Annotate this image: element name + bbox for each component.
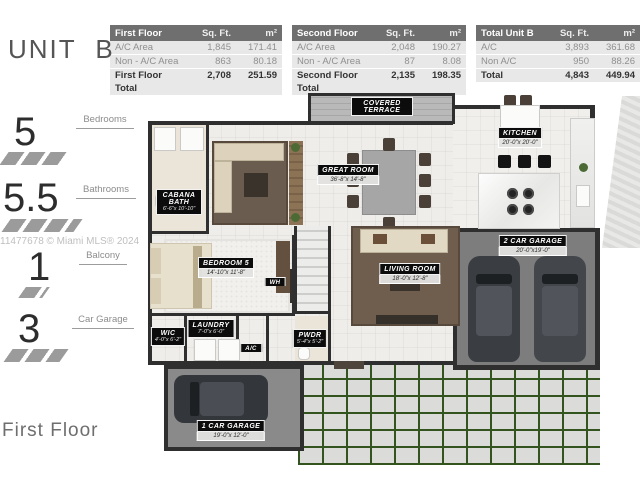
- pillow: [151, 278, 161, 304]
- stat-garage-label: Car Garage: [72, 314, 134, 329]
- stat-bathrooms-label: Bathrooms: [76, 184, 136, 199]
- car-roof: [200, 382, 244, 416]
- unit-title: UNIT B: [8, 34, 115, 65]
- stat-bathrooms-value: 5.5: [3, 178, 59, 218]
- island-stool: [518, 155, 531, 168]
- wall: [328, 311, 331, 363]
- car-top-view: [534, 256, 586, 362]
- table-total-row: Total 4,843 449.94: [476, 69, 640, 83]
- table-total-row: Second Floor Total 2,135 198.35: [292, 69, 466, 96]
- plant: [291, 213, 300, 222]
- washer: [194, 339, 216, 361]
- table-title: Second Floor: [297, 27, 369, 40]
- car-top-view: [174, 375, 268, 423]
- room-label-cabana-bath: CABANA BATH 6'-6"x 10'-10": [156, 189, 202, 215]
- cooktop-burner: [523, 204, 534, 215]
- table-row: Non - A/C Area 87 8.08: [292, 55, 466, 69]
- car-roof: [542, 286, 578, 336]
- dining-chair: [419, 174, 431, 187]
- cooktop-burner: [507, 204, 518, 215]
- table-first-floor: First Floor Sq. Ft. m² A/C Area 1,845 17…: [110, 25, 282, 96]
- room-label-wic: WIC 4'-0"x 6'-2": [151, 327, 185, 346]
- watermark: 11477678 © Miami MLS® 2024: [0, 236, 140, 247]
- wall: [206, 121, 209, 233]
- room-label-2-car-garage: 2 CAR GARAGE 20'-0"x19'-0": [499, 235, 567, 256]
- sofa: [360, 229, 448, 253]
- media-feature-wall: [289, 141, 303, 225]
- hatch-bar: [3, 349, 68, 362]
- plant: [291, 143, 300, 152]
- sofa: [214, 143, 284, 161]
- table-header: Total Unit B Sq. Ft. m²: [476, 25, 640, 41]
- table-title: Total Unit B: [481, 27, 543, 40]
- wall: [292, 311, 331, 314]
- coffee-table: [244, 173, 268, 197]
- pillow: [373, 234, 387, 244]
- windshield: [542, 274, 578, 284]
- car-top-view: [468, 256, 520, 362]
- table-title: First Floor: [115, 27, 185, 40]
- room-label-great-room: GREAT ROOM 36'-8"x 14'-8": [317, 164, 379, 185]
- entry-step: [334, 361, 364, 369]
- col-sqft: Sq. Ft.: [185, 27, 231, 40]
- room-label-bedroom5: BEDROOM 5 14'-10"x 11'-8": [198, 257, 254, 278]
- pillow: [421, 234, 435, 244]
- pillow: [151, 248, 161, 274]
- cooktop-burner: [523, 188, 534, 199]
- island-stool: [498, 155, 511, 168]
- room-label-kitchen: KITCHEN 20'-0"x 20'-0": [498, 127, 542, 148]
- hatch-bar: [1, 219, 82, 232]
- col-sqft: Sq. Ft.: [543, 27, 589, 40]
- island-stool: [538, 155, 551, 168]
- col-m2: m²: [589, 27, 635, 40]
- table-row: A/C 3,893 361.68: [476, 41, 640, 55]
- toilet: [298, 347, 310, 360]
- table-row: A/C Area 2,048 190.27: [292, 41, 466, 55]
- table-second-floor: Second Floor Sq. Ft. m² A/C Area 2,048 1…: [292, 25, 466, 96]
- windshield: [476, 274, 512, 284]
- kitchen-counter: [570, 118, 595, 228]
- col-m2: m²: [415, 27, 461, 40]
- wall: [148, 231, 209, 234]
- col-sqft: Sq. Ft.: [369, 27, 415, 40]
- table-total-row: First Floor Total 2,708 251.59: [110, 69, 282, 96]
- sink: [576, 185, 590, 207]
- dining-chair: [419, 195, 431, 208]
- driveway-pavers: [298, 365, 600, 465]
- room-label-living-room: LIVING ROOM 18'-0"x 12'-8": [379, 263, 440, 284]
- tv-console: [376, 315, 438, 324]
- room-label-covered-terrace: COVERED TERRACE: [351, 97, 413, 116]
- floor-name: First Floor: [2, 420, 99, 442]
- room-label-wh: WH: [265, 277, 286, 286]
- kitchen-island: [478, 173, 560, 229]
- stat-bedrooms-value: 5: [14, 112, 36, 152]
- floor-plan: COVERED TERRACE KITCHEN 20'-0"x 20'-0" G…: [148, 93, 600, 465]
- table-row: Non - A/C Area 863 80.18: [110, 55, 282, 69]
- room-label-1-car-garage: 1 CAR GARAGE 19'-0"x 12'-0": [197, 420, 265, 441]
- dryer: [218, 339, 240, 361]
- windshield: [190, 382, 199, 416]
- stat-balcony-value: 1: [28, 247, 50, 287]
- table-total-unit: Total Unit B Sq. Ft. m² A/C 3,893 361.68…: [476, 25, 640, 83]
- stat-bedrooms-label: Bedrooms: [76, 114, 134, 129]
- floorplan-page: First Floor Sq. Ft. m² A/C Area 1,845 17…: [0, 0, 640, 480]
- sofa: [214, 161, 232, 213]
- shower: [180, 127, 204, 151]
- hatch-bar: [0, 152, 71, 165]
- cooktop-burner: [507, 188, 518, 199]
- table-header: First Floor Sq. Ft. m²: [110, 25, 282, 41]
- staircase: [294, 226, 331, 311]
- table-row: A/C Area 1,845 171.41: [110, 41, 282, 55]
- dining-chair: [383, 138, 395, 151]
- dining-chair: [419, 153, 431, 166]
- room-label-ac: A/C: [240, 343, 262, 352]
- col-m2: m²: [231, 27, 277, 40]
- stat-balcony-label: Balcony: [79, 250, 127, 265]
- plant: [579, 163, 588, 172]
- room-label-laundry: LAUNDRY 7'-0"x 6'-0": [188, 319, 235, 338]
- vanity: [154, 127, 176, 151]
- breakfast-table: [500, 105, 540, 129]
- hatch-bar: [18, 287, 50, 298]
- wall: [148, 313, 295, 316]
- wall: [266, 315, 269, 365]
- stat-garage-value: 3: [18, 309, 40, 349]
- car-roof: [476, 286, 512, 336]
- side-walkway: [600, 96, 640, 248]
- table-row: Non A/C 950 88.26: [476, 55, 640, 69]
- room-label-pwdr: PWDR 5'-4"x 5'-2": [293, 329, 327, 348]
- table-header: Second Floor Sq. Ft. m²: [292, 25, 466, 41]
- dining-chair: [347, 195, 359, 208]
